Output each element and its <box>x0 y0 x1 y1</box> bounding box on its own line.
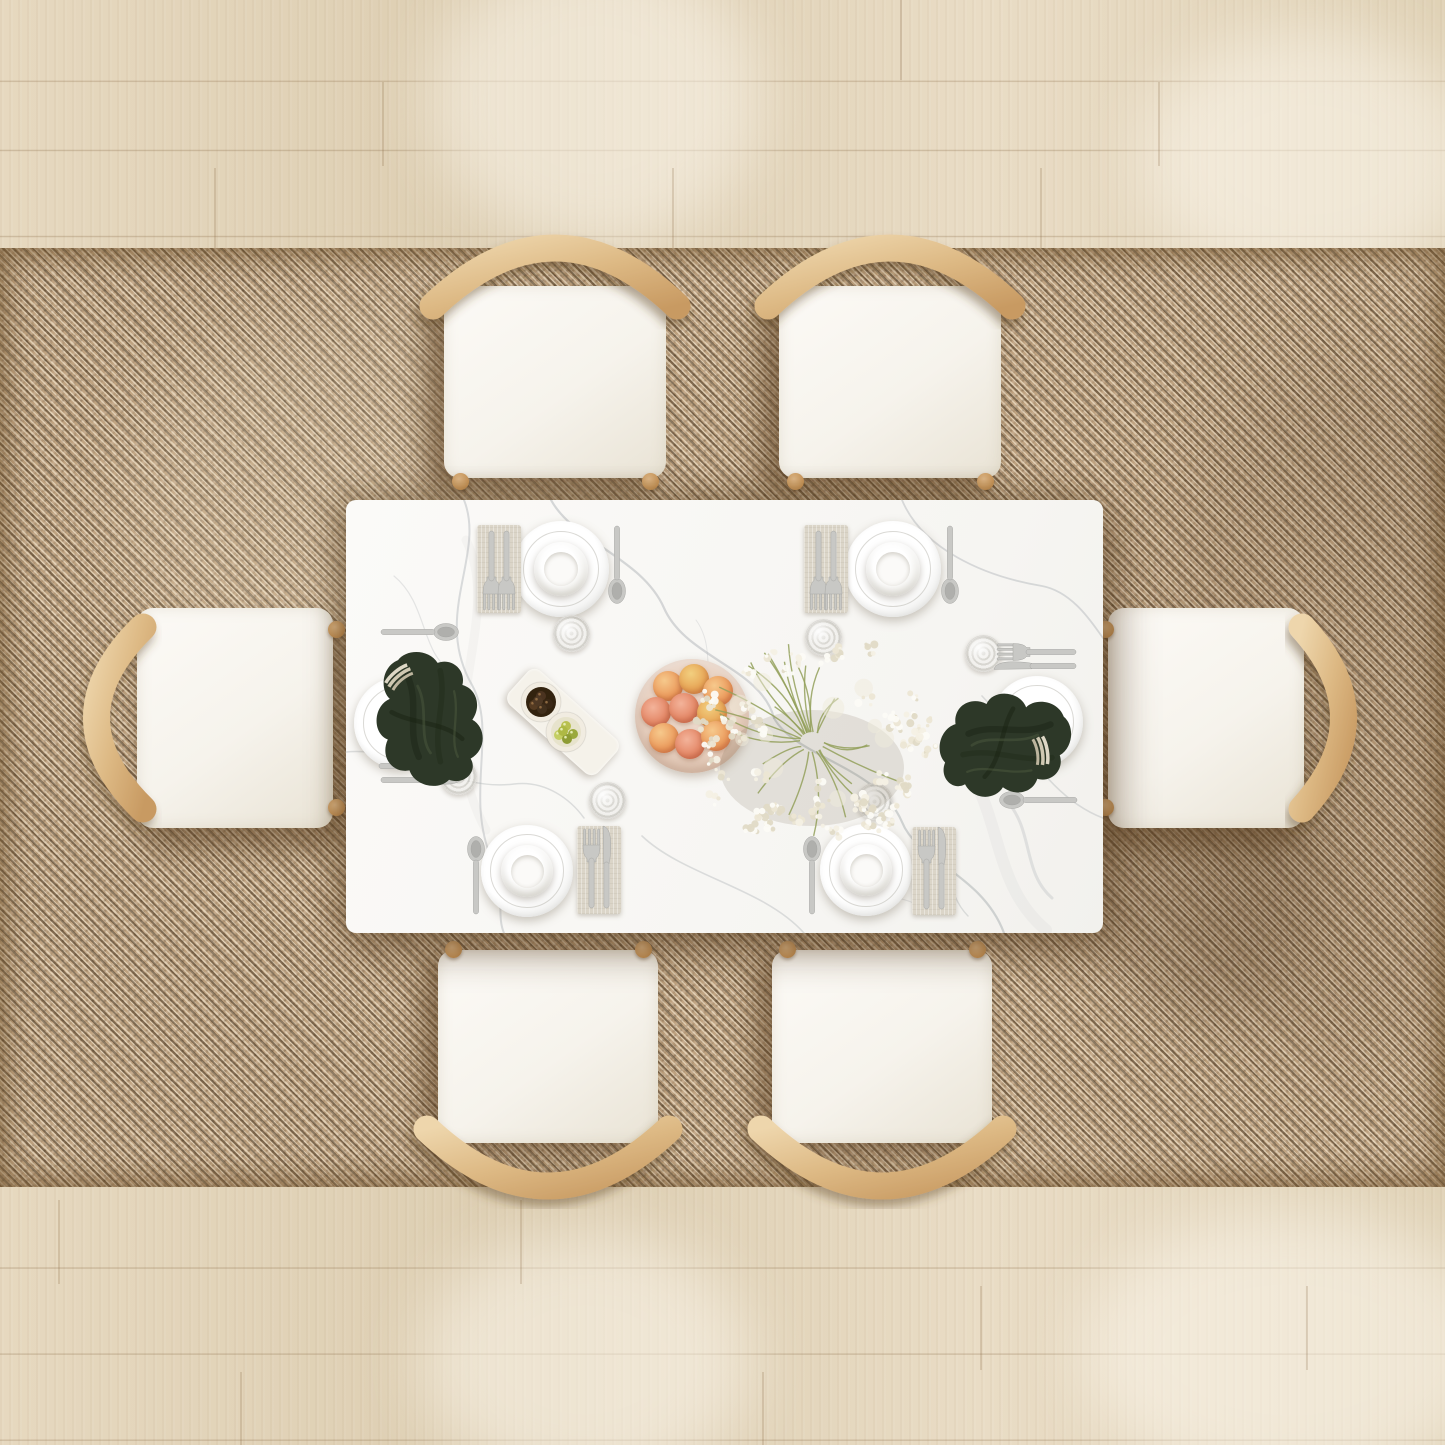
chair-leg <box>328 799 345 816</box>
marble-veins <box>346 500 1103 933</box>
marble-dining-table <box>346 500 1103 933</box>
chair-leg <box>452 473 469 490</box>
dining-room-top-view <box>0 0 1445 1445</box>
chair-leg <box>445 941 462 958</box>
chair-seat-cushion <box>1108 608 1304 828</box>
chair-leg <box>787 473 804 490</box>
chair-seat-cushion <box>444 286 666 478</box>
chair-seat-cushion <box>137 608 333 828</box>
chair-leg <box>328 621 345 638</box>
chair-leg <box>779 941 796 958</box>
chair-leg <box>977 473 994 490</box>
chair-seat-cushion <box>772 950 992 1143</box>
chair-seat-cushion <box>779 286 1001 478</box>
chair-seat-cushion <box>438 950 658 1143</box>
chair-leg <box>642 473 659 490</box>
chair-leg <box>969 941 986 958</box>
chair-leg <box>635 941 652 958</box>
